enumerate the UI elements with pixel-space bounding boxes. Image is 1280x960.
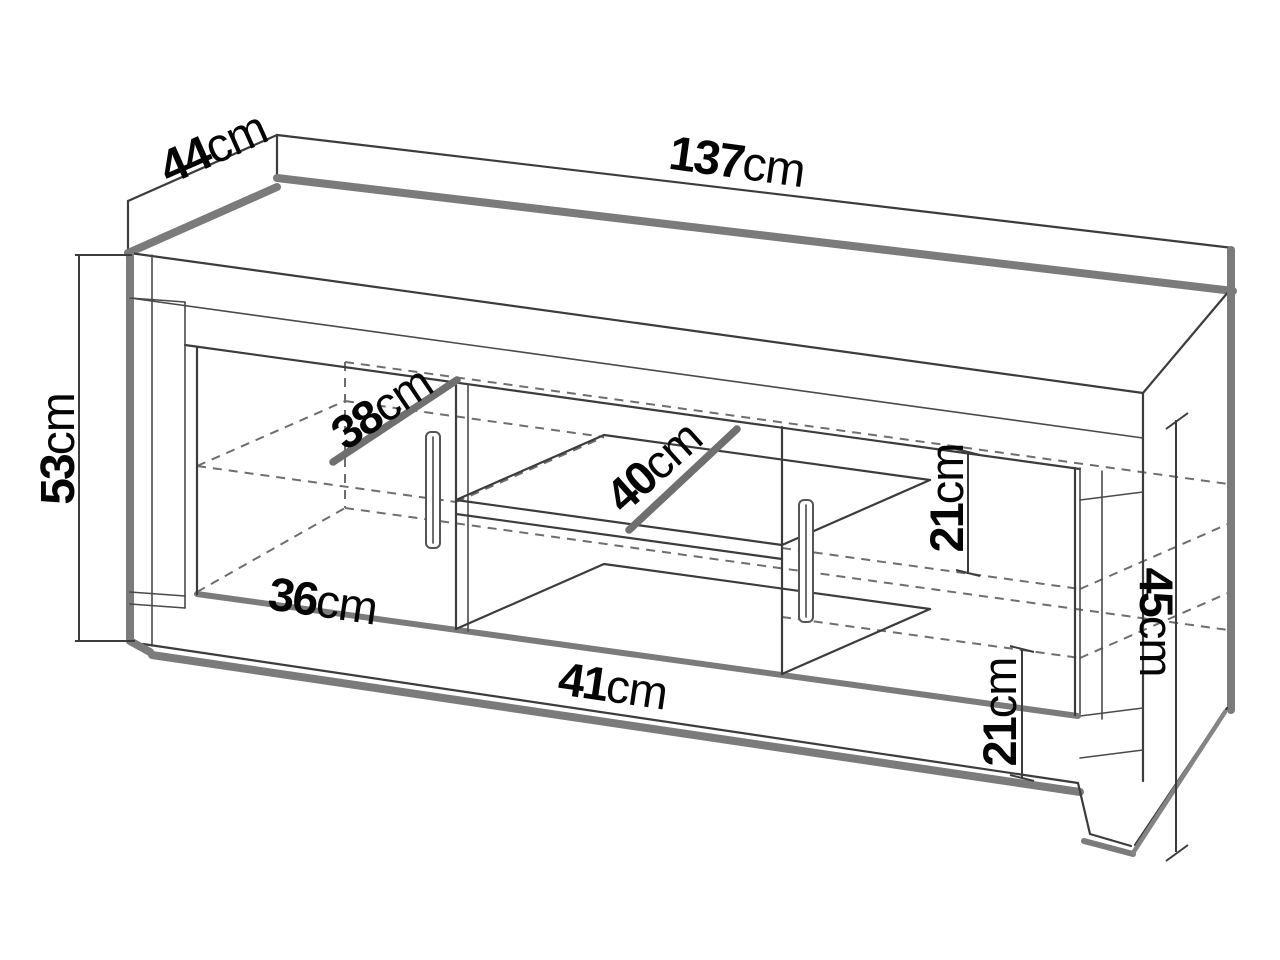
dimension-lines	[75, 255, 1188, 861]
dim-label-right-side-height: 45cm	[1131, 568, 1184, 677]
dim-label-right-lower-gap: 21cm	[973, 658, 1026, 767]
dim-label-right-upper-gap: 21cm	[920, 444, 973, 553]
dim-label-top-width: 137cm	[666, 126, 808, 197]
diagram-stage: 44cm 137cm 53cm 38cm 40cm 36cm 41cm 21cm…	[0, 0, 1280, 960]
cabinet-dimension-diagram: 44cm 137cm 53cm 38cm 40cm 36cm 41cm 21cm…	[0, 0, 1280, 960]
cabinet-body	[130, 250, 1231, 854]
dim-label-top-depth: 44cm	[151, 101, 274, 195]
dim-label-bottom-left-width: 36cm	[265, 566, 380, 634]
dim-label-left-door-width: 38cm	[321, 355, 441, 460]
dim-label-left-height: 53cm	[32, 393, 85, 504]
